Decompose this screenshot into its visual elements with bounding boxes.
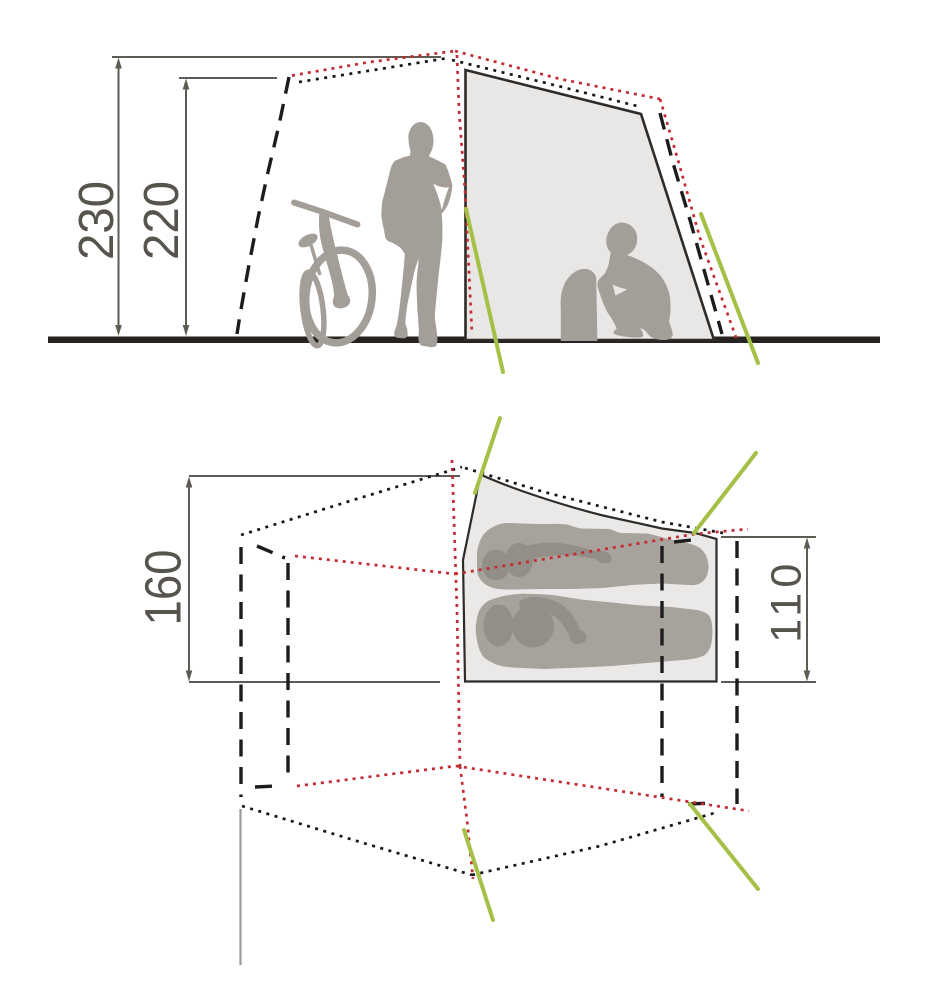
svg-text:220: 220	[135, 181, 189, 260]
svg-text:160: 160	[135, 550, 192, 626]
svg-text:230: 230	[70, 181, 124, 260]
svg-text:110: 110	[763, 564, 811, 643]
